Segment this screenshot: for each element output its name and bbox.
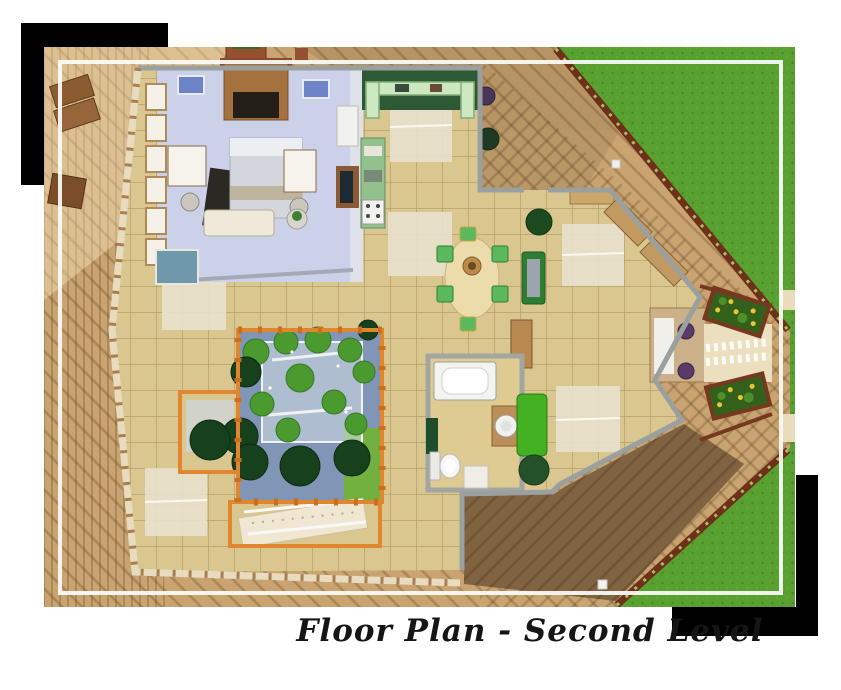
toilet-tank [430,452,440,480]
kitchen-counter [366,82,379,118]
conifer [280,446,320,486]
brick-vent [295,48,308,61]
bedroom [146,58,363,284]
window [146,84,166,110]
wardrobe [337,106,358,146]
countertop-appliance [430,84,442,92]
desk-chair [181,193,199,211]
bush [276,418,300,442]
kitchen-counter [366,82,474,95]
bush [286,364,314,392]
bush [353,361,375,383]
sofa-cushion [527,259,540,297]
sparkle [290,350,293,353]
window [146,177,166,203]
dining-chair [437,286,453,302]
window [146,208,166,234]
balcony-step [781,290,796,310]
bush [274,330,298,354]
black-bar-left [21,47,45,185]
tv-screen [340,171,353,203]
bathtub-basin [442,368,488,394]
aquarium [156,250,198,284]
stove [362,200,384,224]
wall-painting [178,76,204,94]
wall-painting [303,80,329,98]
rug [162,278,226,330]
dining-chair [492,286,508,302]
green-cabinet [426,418,438,454]
fireplace-grate [233,92,279,118]
sparkle [336,364,339,367]
window [146,115,166,141]
conifer [334,440,370,476]
houseplant [519,455,549,485]
toilet-seat [445,459,456,473]
lot-marker [598,580,607,589]
lot-photo [44,42,797,607]
dining-chair [460,317,476,331]
stove-burner [376,204,380,208]
sink-basin [501,421,512,432]
lot-marker [612,160,620,168]
bush [338,338,362,362]
stove-burner [366,214,370,218]
vanity-sink [678,363,694,379]
dining-chair [460,227,476,241]
desk [284,150,316,192]
dining-chair [437,246,453,262]
loveseat [204,210,274,236]
green-lounge [517,394,547,456]
island-clutter [364,146,382,156]
bush [322,390,346,414]
wall-shelf [570,192,614,204]
floorplan-scene: Floor Plan - Second Level [0,0,841,690]
bush [345,413,367,435]
wood-chair [48,173,87,208]
houseplant [526,209,552,235]
countertop-appliance [395,84,409,92]
bush [250,392,274,416]
floorplan-screenshot: Floor Plan - Second Level [0,0,841,690]
shower-stall [464,466,488,488]
black-bar-top-left [21,23,168,47]
desk [168,146,206,186]
window [146,146,166,172]
balcony-step [782,414,797,442]
caption: Floor Plan - Second Level [295,613,763,649]
kitchen-counter [461,82,474,118]
conifer [190,420,230,460]
dining-chair [492,246,508,262]
stove-burner [366,204,370,208]
island-sink [364,170,382,182]
table-plant [292,211,302,221]
rug [388,212,452,276]
fruit-bowl-center [468,262,476,270]
chimney-top [232,42,260,49]
sparkle [268,386,271,389]
sparkle [344,410,347,413]
stove-burner [376,214,380,218]
